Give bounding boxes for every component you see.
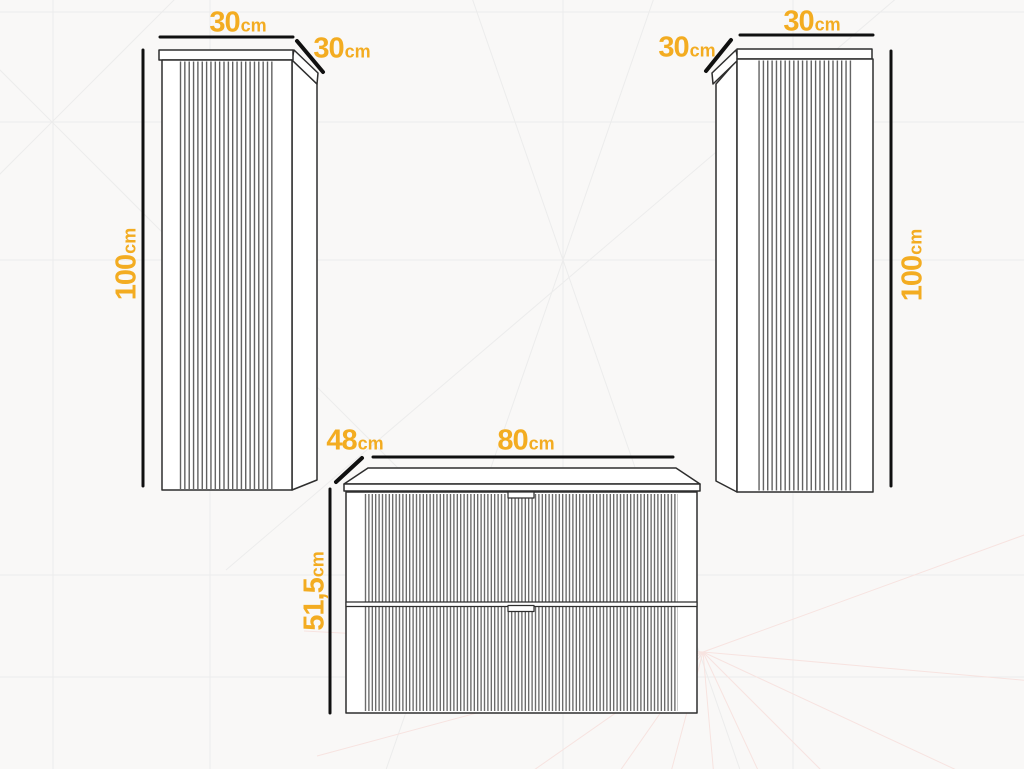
dim-value: 30 [313, 35, 343, 64]
dim-value: 30 [783, 8, 813, 37]
dim-label-vanity-width: 80 cm [497, 427, 554, 456]
dim-unit: cm [529, 435, 555, 453]
dim-label-right-cabinet-height: 100 cm [899, 229, 928, 301]
vanity-countertop-edge [344, 484, 700, 491]
left-tall-cabinet [159, 50, 318, 490]
dim-label-vanity-height: 51,5 cm [301, 551, 330, 630]
vanity-drawer-bottom-fluting [364, 607, 678, 711]
dim-label-vanity-depth: 48 cm [326, 427, 383, 456]
vanity-cabinet [344, 468, 700, 713]
left-cabinet-side-panel [292, 60, 317, 490]
dim-value: 100 [899, 256, 928, 301]
diagram-scene [0, 0, 1024, 769]
right-cabinet-top-panel [737, 49, 872, 59]
right-cabinet-side-panel [716, 60, 737, 492]
right-cabinet-fluting [757, 61, 852, 491]
left-cabinet-top-panel [159, 50, 293, 60]
dim-value: 48 [326, 427, 356, 456]
dim-label-right-cabinet-width: 30 cm [783, 8, 840, 37]
dim-value: 80 [497, 427, 527, 456]
dim-unit: cm [358, 435, 384, 453]
vanity-drawer-bottom-handle [508, 606, 534, 612]
right-tall-cabinet [712, 49, 873, 492]
dim-label-left-cabinet-height: 100 cm [113, 228, 142, 300]
dim-value: 30 [658, 34, 688, 63]
dim-unit: cm [907, 229, 925, 255]
vanity-countertop [344, 468, 700, 484]
left-cabinet-fluting [177, 62, 273, 490]
dim-label-left-cabinet-width: 30 cm [209, 9, 266, 38]
dim-unit: cm [121, 228, 139, 254]
dim-value: 30 [209, 9, 239, 38]
dim-unit: cm [690, 42, 716, 60]
vanity-drawer-top-fluting [364, 494, 678, 602]
dim-unit: cm [345, 43, 371, 61]
dim-label-right-cabinet-depth: 30 cm [658, 34, 715, 63]
dim-value: 51,5 [301, 578, 330, 630]
vanity-drawer-top-handle [508, 492, 534, 498]
dim-value: 100 [113, 255, 142, 300]
dim-label-left-cabinet-depth: 30 cm [313, 35, 370, 64]
dim-unit: cm [815, 16, 841, 34]
dim-unit: cm [309, 551, 327, 577]
dim-unit: cm [241, 17, 267, 35]
diagram-canvas: 30 cm 30 cm 100 cm 30 cm 30 cm 100 cm 48… [0, 0, 1024, 769]
